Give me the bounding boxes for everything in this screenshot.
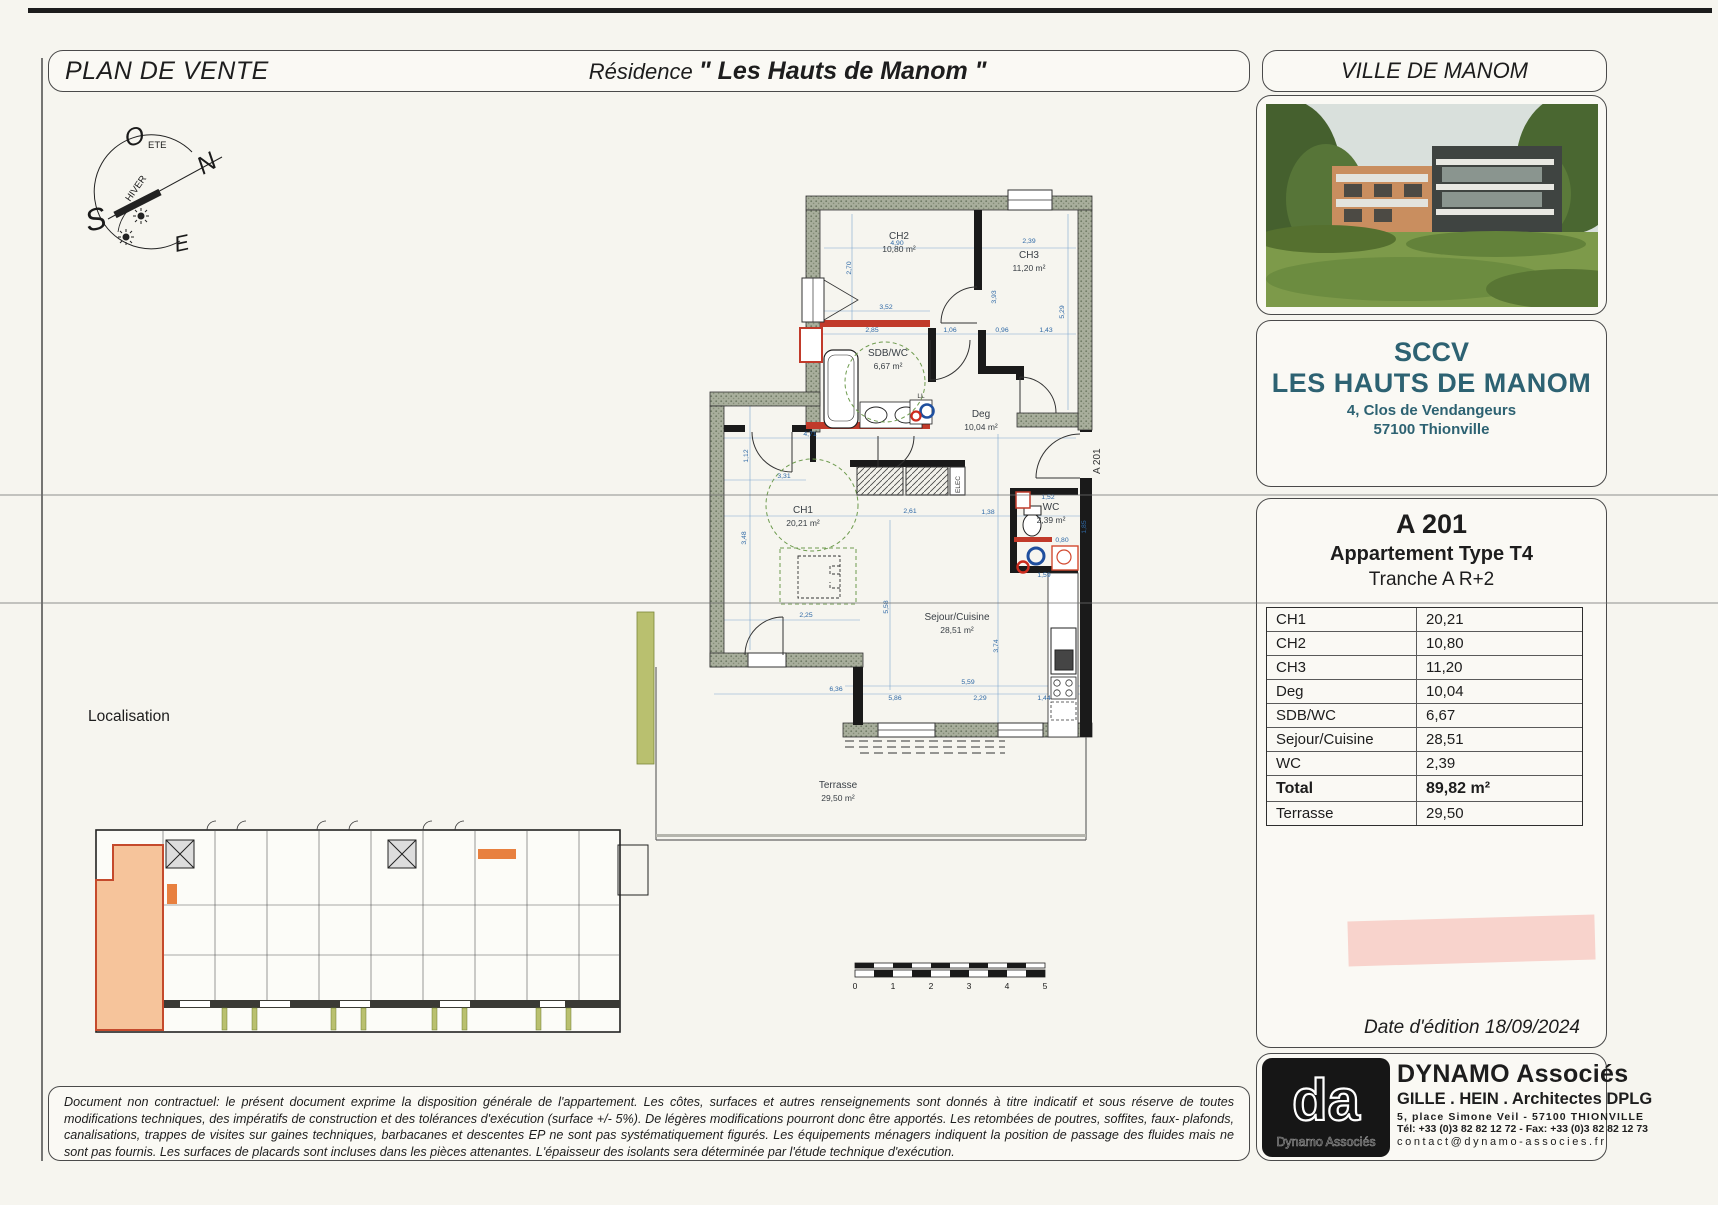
dimension-label: 5,86 <box>888 695 901 702</box>
residence-title: Résidence " Les Hauts de Manom " <box>589 57 987 86</box>
scan-fold-line <box>0 602 1718 604</box>
dimension-label: 2,29 <box>973 695 986 702</box>
sdb-window <box>800 328 822 362</box>
table-row: Deg10,04 <box>1267 679 1582 703</box>
row-label: Terrasse <box>1267 802 1417 825</box>
row-value: 20,21 <box>1417 611 1464 628</box>
header-bar: PLAN DE VENTE Résidence " Les Hauts de M… <box>48 50 1250 92</box>
room-area: 10,04 m² <box>964 422 998 432</box>
developer-address-line1: 4, Clos de Vendangeurs <box>1257 402 1606 421</box>
dimension-label: 4,90 <box>890 240 903 247</box>
dimension-label: 1,59 <box>1037 572 1050 579</box>
washing-machine-label: LL <box>917 393 925 400</box>
dimension-label: 3,74 <box>993 639 1000 652</box>
room-area: 6,67 m² <box>874 361 903 371</box>
row-value: 6,67 <box>1417 707 1455 724</box>
compass-summer: ETE <box>148 140 166 151</box>
room-name: SDB/WC <box>868 348 908 359</box>
room-area: 2,39 m² <box>1037 515 1066 525</box>
edition-date: Date d'édition 18/09/2024 <box>1364 1017 1580 1039</box>
row-label: CH3 <box>1267 656 1417 679</box>
compass-south: S <box>81 200 110 239</box>
row-value: 29,50 <box>1417 805 1464 822</box>
room-name: WC <box>1043 502 1060 513</box>
dimension-label: 1,43 <box>1039 327 1052 334</box>
dimension-label: 3,93 <box>991 290 998 303</box>
residence-name: " Les Hauts de Manom " <box>699 57 987 85</box>
ch1-window <box>748 653 786 667</box>
table-row: CH311,20 <box>1267 655 1582 679</box>
architect-partners: GILLE . HEIN . Architectes DPLG <box>1397 1090 1605 1109</box>
dimension-label: 5,29 <box>1059 305 1066 318</box>
room-name: CH1 <box>793 505 813 516</box>
dimension-label: 4,71 <box>803 431 816 438</box>
localisation-label: Localisation <box>88 708 170 726</box>
surface-table: CH120,21 CH210,80 CH311,20 Deg10,04 SDB/… <box>1266 607 1583 826</box>
row-value: 89,82 m² <box>1417 780 1490 798</box>
dimension-label: 6,36 <box>829 686 842 693</box>
room-area: 11,20 m² <box>1013 263 1046 273</box>
table-row: Sejour/Cuisine28,51 <box>1267 727 1582 751</box>
scale-tick: 5 <box>1043 981 1048 991</box>
dimension-label: 1,44 <box>1037 695 1050 702</box>
logo-sub-text: Dynamo Associés <box>1276 1135 1375 1149</box>
room-name: CH3 <box>1019 250 1039 261</box>
developer-name-line1: SCCV <box>1257 337 1606 368</box>
dimension-label: 2,61 <box>903 508 916 515</box>
architect-phone: Tél: +33 (0)3 82 82 12 72 - Fax: +33 (0)… <box>1397 1123 1605 1135</box>
row-value: 10,04 <box>1417 683 1464 700</box>
dimension-label: 2,70 <box>846 261 853 274</box>
table-row-total: Total89,82 m² <box>1267 775 1582 801</box>
row-value: 10,80 <box>1417 635 1464 652</box>
room-area: 20,21 m² <box>786 518 820 528</box>
table-row: CH120,21 <box>1267 608 1582 631</box>
room-name: Sejour/Cuisine <box>924 612 989 623</box>
building-photo <box>1266 104 1598 307</box>
unit-tranche: Tranche A R+2 <box>1257 569 1606 591</box>
compass-east: E <box>172 229 192 257</box>
row-value: 11,20 <box>1417 659 1462 676</box>
compass-west: O <box>122 121 148 153</box>
architect-panel: da Dynamo Associés DYNAMO Associés GILLE… <box>1256 1053 1607 1161</box>
unit-code: A 201 <box>1257 509 1606 540</box>
room-area: 29,50 m² <box>821 793 855 803</box>
row-label: CH2 <box>1267 632 1417 655</box>
disclaimer-text: Document non contractuel: le présent doc… <box>49 1087 1249 1168</box>
unit-plan-label: A 201 <box>1092 448 1103 474</box>
room-area: 28,51 m² <box>940 625 974 635</box>
dimension-label: 3,31 <box>777 473 790 480</box>
compass-rose: O N S E ETE HIVER <box>81 121 222 257</box>
developer-name-line2: LES HAUTS DE MANOM <box>1257 368 1606 399</box>
scan-fold-line <box>0 494 1718 496</box>
developer-address-line2: 57100 Thionville <box>1257 421 1606 440</box>
dimension-label: 0,96 <box>995 327 1008 334</box>
row-label: CH1 <box>1267 608 1417 631</box>
room-name: Deg <box>972 409 990 420</box>
city-label: VILLE DE MANOM <box>1341 58 1528 84</box>
row-value: 28,51 <box>1417 731 1464 748</box>
dimension-label: 2,25 <box>799 612 812 619</box>
dimension-label: 2,39 <box>1022 238 1035 245</box>
dimension-label: 5,59 <box>961 679 974 686</box>
scale-bar: 0 1 2 3 4 5 <box>853 963 1048 991</box>
disclaimer-box: Document non contractuel: le présent doc… <box>48 1086 1250 1161</box>
scale-tick: 4 <box>1005 981 1010 991</box>
dimension-label: 3,48 <box>741 531 748 544</box>
row-label: Total <box>1267 776 1417 801</box>
dimension-label: 1,38 <box>981 509 994 516</box>
page-title: PLAN DE VENTE <box>65 57 269 86</box>
elec-label: ELEC <box>955 476 962 493</box>
developer-panel: SCCV LES HAUTS DE MANOM 4, Clos de Venda… <box>1256 320 1607 487</box>
logo-da-text: da <box>1292 1068 1360 1133</box>
site-plan <box>96 821 648 1032</box>
room-name: Terrasse <box>819 780 858 791</box>
row-label: Deg <box>1267 680 1417 703</box>
floor-plan: CH210,80 m²CH311,20 m²SDB/WC6,67 m²Deg10… <box>637 190 1103 840</box>
dimension-label: 3,52 <box>879 304 892 311</box>
dimension-label: 1,12 <box>743 449 750 462</box>
scale-tick: 0 <box>853 981 858 991</box>
planter-strip <box>637 612 654 764</box>
scale-tick: 1 <box>891 981 896 991</box>
dimension-label: 1,85 <box>1081 520 1088 533</box>
dimension-label: 1,06 <box>943 327 956 334</box>
architect-address: 5, place Simone Veil - 57100 THIONVILLE <box>1397 1111 1605 1123</box>
dimension-label: 2,85 <box>865 327 878 334</box>
row-label: WC <box>1267 752 1417 775</box>
unit-type: Appartement Type T4 <box>1257 543 1606 566</box>
row-label: Sejour/Cuisine <box>1267 728 1417 751</box>
scale-tick: 2 <box>929 981 934 991</box>
residence-prefix: Résidence <box>589 59 693 84</box>
row-label: SDB/WC <box>1267 704 1417 727</box>
building-photo-frame <box>1256 95 1607 315</box>
scale-tick: 3 <box>967 981 972 991</box>
table-row: Terrasse29,50 <box>1267 801 1582 825</box>
architect-name: DYNAMO Associés <box>1397 1060 1605 1089</box>
city-box: VILLE DE MANOM <box>1262 50 1607 92</box>
dimension-label: 0,80 <box>1055 537 1068 544</box>
architect-logo: da Dynamo Associés <box>1262 1058 1390 1157</box>
row-value: 2,39 <box>1417 755 1455 772</box>
table-row: SDB/WC6,67 <box>1267 703 1582 727</box>
table-row: CH210,80 <box>1267 631 1582 655</box>
compass-north: N <box>192 146 222 180</box>
redacted-price-area <box>1347 915 1595 967</box>
architect-email: contact@dynamo-associes.fr <box>1397 1136 1605 1148</box>
table-row: WC2,39 <box>1267 751 1582 775</box>
unit-panel: A 201 Appartement Type T4 Tranche A R+2 … <box>1256 498 1607 1048</box>
